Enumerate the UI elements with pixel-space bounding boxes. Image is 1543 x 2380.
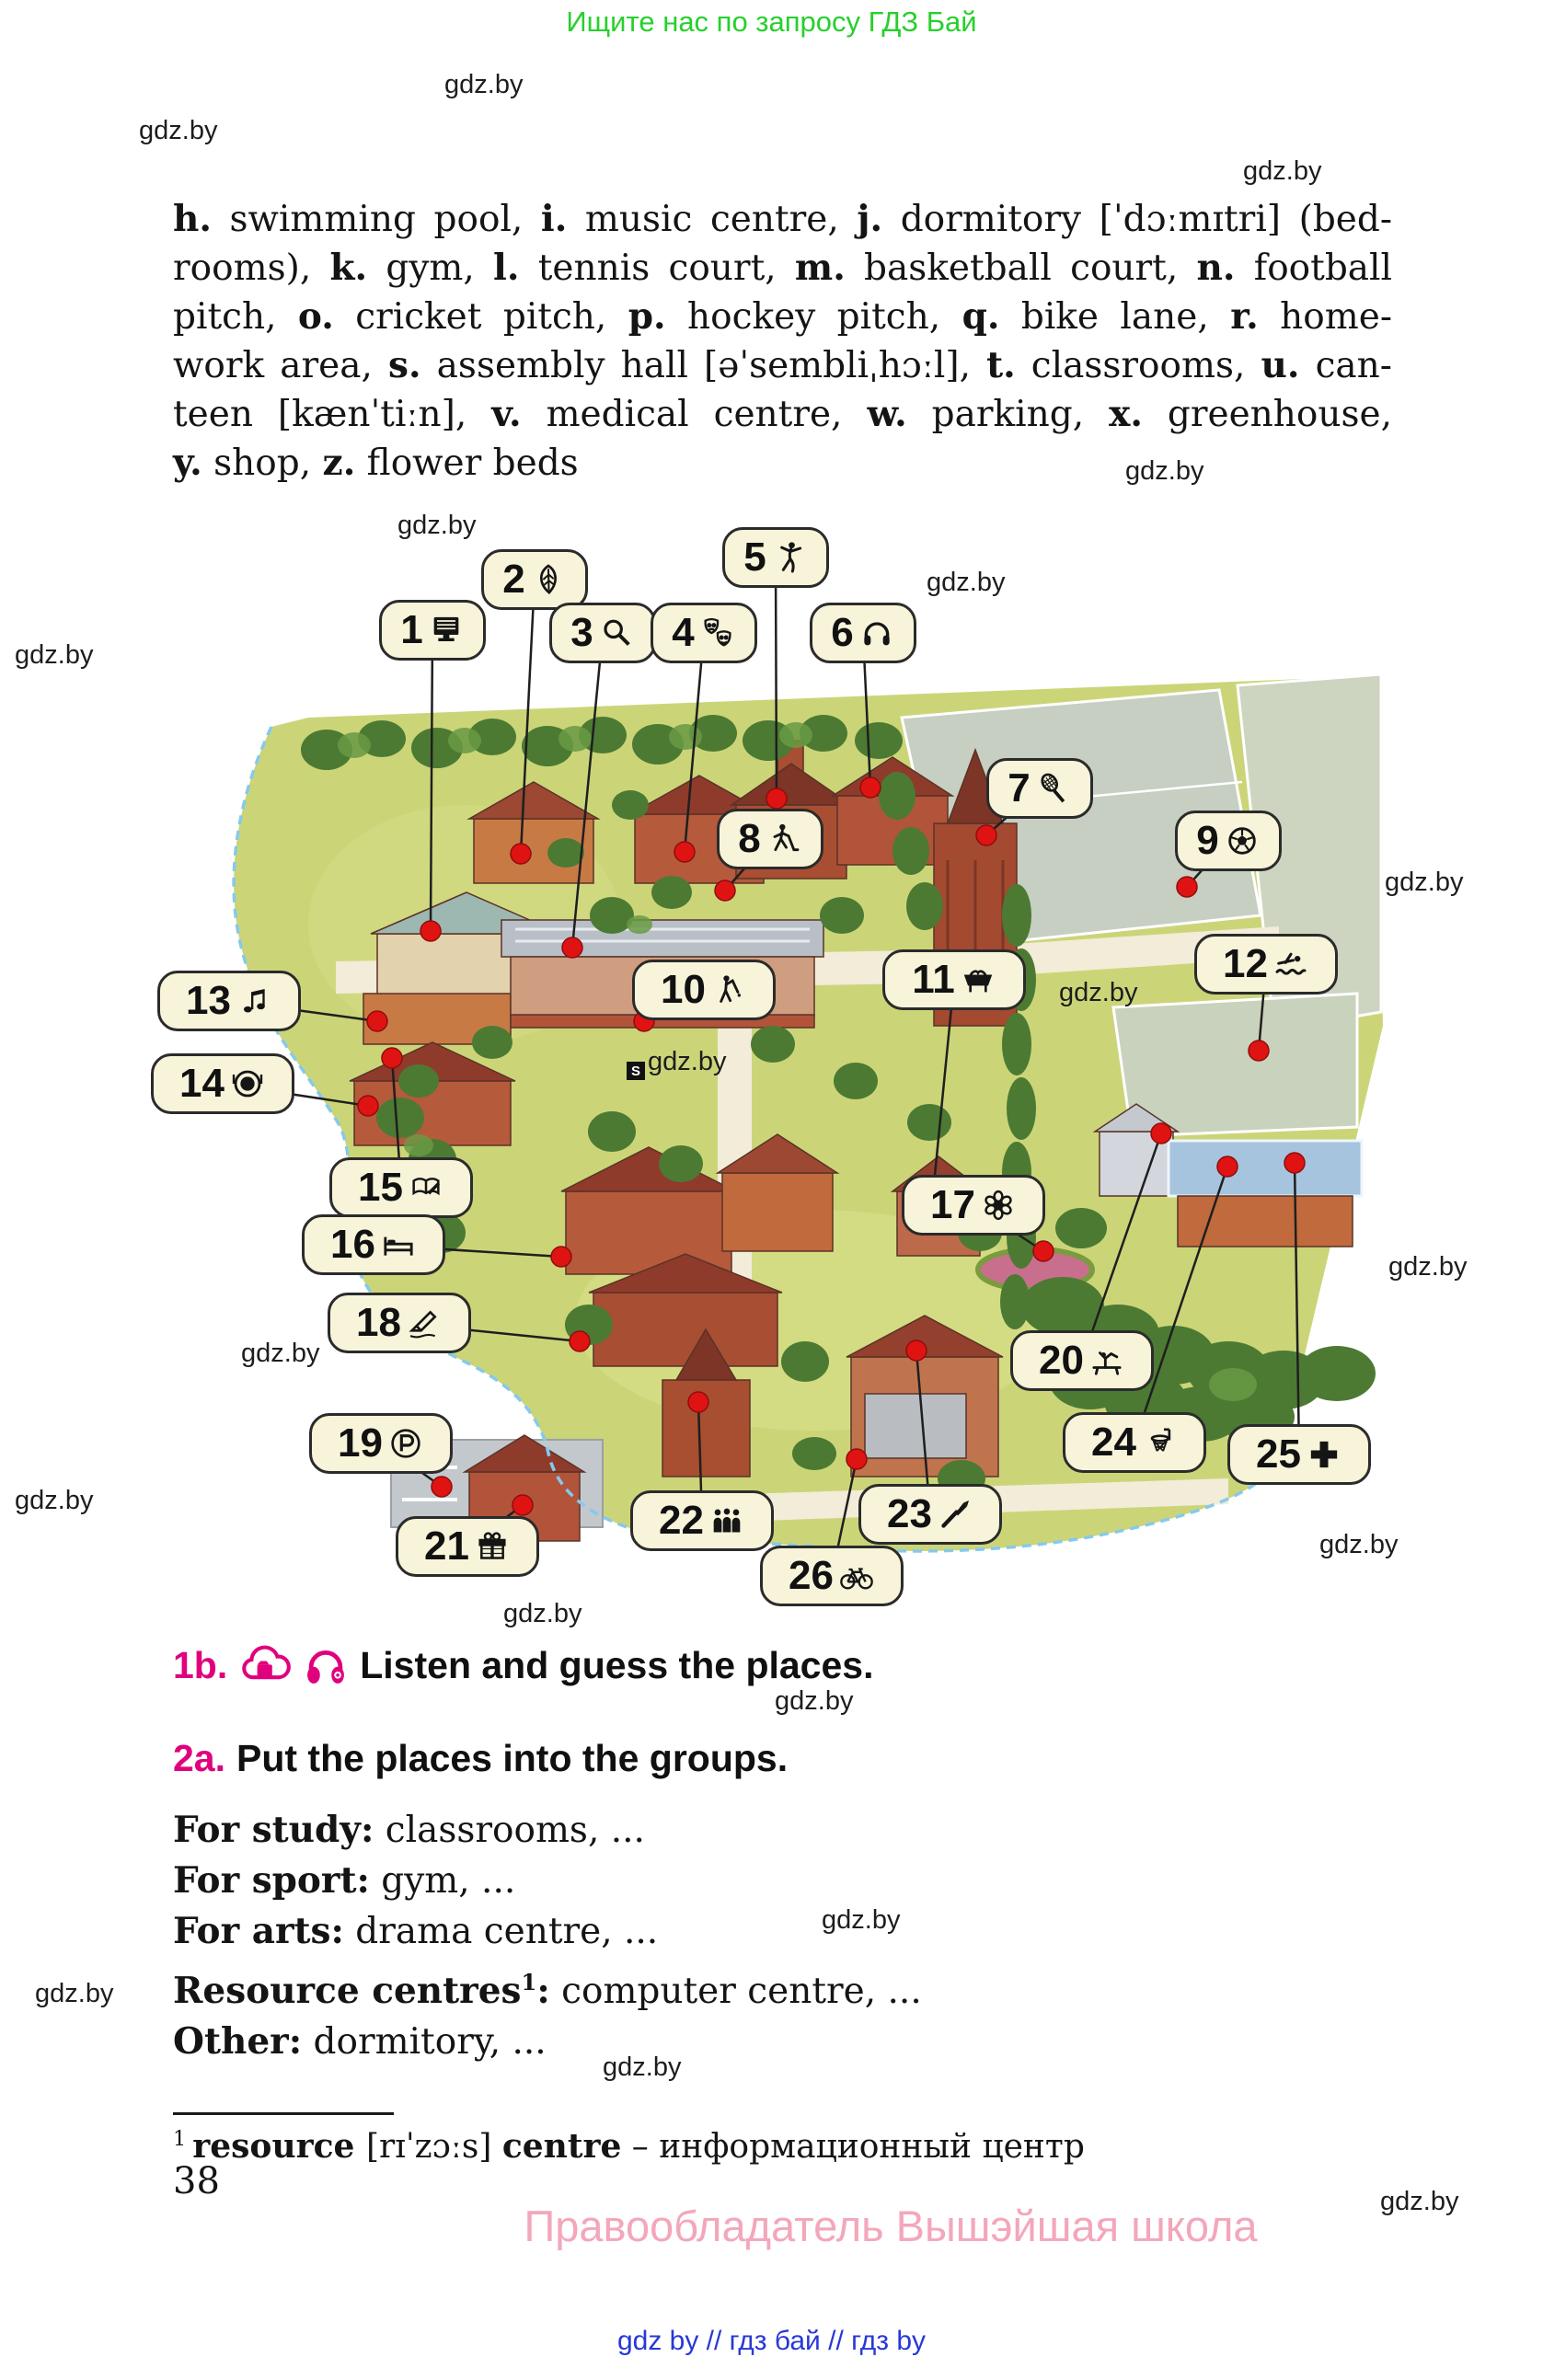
map-label-number: 12 xyxy=(1223,944,1268,984)
text-segment: assembly hall [əˈsembliˌhɔːl], xyxy=(421,345,987,386)
map-label-19: 19 xyxy=(309,1413,453,1474)
text-segment: parking, xyxy=(907,394,1109,435)
vocab-line: h. swimming pool, i. music centre, j. do… xyxy=(173,195,1392,244)
gdz-watermark: gdz.by xyxy=(241,1339,319,1369)
map-label-11: 11 xyxy=(882,949,1026,1010)
map-label-number: 11 xyxy=(912,960,955,1000)
text-segment: m. xyxy=(795,247,846,289)
text-segment: shop, xyxy=(202,443,323,484)
leaf-icon xyxy=(530,561,567,598)
gdz-watermark: gdz.by xyxy=(822,1905,900,1936)
headphones-icon xyxy=(858,615,895,651)
gdz-watermark: gdz.by xyxy=(1388,1252,1467,1282)
vocab-line: pitch, o. cricket pitch, p. hockey pitch… xyxy=(173,293,1392,341)
map-label-3: 3 xyxy=(549,603,656,663)
school-desk-icon xyxy=(960,961,996,998)
map-label-number: 15 xyxy=(358,1167,403,1208)
dancer-icon xyxy=(771,539,808,576)
gdz-watermark: gdz.by xyxy=(397,511,476,541)
map-label-20: 20 xyxy=(1010,1330,1154,1391)
gift-icon xyxy=(474,1528,511,1565)
map-label-23: 23 xyxy=(858,1484,1002,1545)
text-segment: greenhouse, xyxy=(1143,394,1392,435)
map-label-4: 4 xyxy=(651,603,757,663)
text-segment: rooms), xyxy=(173,247,330,289)
gdz-watermark: gdz.by xyxy=(775,1686,853,1717)
footnote: 1 resource [rɪˈzɔːs] centre – информацио… xyxy=(173,2127,1085,2166)
book-pen-icon xyxy=(408,1169,444,1206)
map-label-number: 6 xyxy=(831,613,853,653)
text-segment: teen [kænˈtiːn], xyxy=(173,394,491,435)
map-label-12: 12 xyxy=(1194,934,1338,995)
text-segment: home- xyxy=(1259,296,1392,338)
text-segment: i. xyxy=(541,198,567,240)
top-banner: Ищите нас по запросу ГДЗ Бай xyxy=(0,6,1543,39)
vocab-line: y. shop, z. flower beds xyxy=(173,439,1392,488)
group-line: For study: classrooms, ... xyxy=(173,1805,922,1856)
map-label-number: 4 xyxy=(672,613,694,653)
gdz-watermark: gdz.by xyxy=(1059,978,1137,1008)
text-segment: y. xyxy=(173,442,202,484)
map-label-21: 21 xyxy=(396,1516,539,1577)
page-number: 38 xyxy=(173,2160,220,2202)
map-label-6: 6 xyxy=(810,603,916,663)
text-segment: – информационный центр xyxy=(621,2128,1085,2166)
map-label-number: 7 xyxy=(1008,768,1030,809)
hockey-player-icon xyxy=(766,821,802,857)
map-label-24: 24 xyxy=(1063,1412,1206,1473)
text-segment: z. xyxy=(323,442,356,484)
gdz-watermark: gdz.by xyxy=(35,1979,113,2009)
text-segment: can- xyxy=(1299,345,1392,386)
medical-cross-icon xyxy=(1306,1436,1342,1473)
text-segment: flower beds xyxy=(355,443,578,484)
text-segment: football xyxy=(1235,247,1392,289)
audio-cloud-icon xyxy=(238,1643,292,1687)
text-segment: swimming pool, xyxy=(212,199,541,240)
tennis-racket-icon xyxy=(1035,770,1072,807)
vocab-list: h. swimming pool, i. music centre, j. do… xyxy=(173,195,1392,488)
map-label-9: 9 xyxy=(1175,811,1282,871)
text-segment: music centre, xyxy=(567,199,857,240)
task-text: Put the places into the groups. xyxy=(236,1737,788,1780)
map-label-number: 16 xyxy=(330,1224,375,1265)
text-segment: w. xyxy=(867,393,906,435)
gdz-watermark: gdz.by xyxy=(139,116,217,146)
map-label-number: 14 xyxy=(179,1064,225,1104)
gdz-watermark: gdz.by xyxy=(1319,1530,1398,1560)
theatre-masks-icon xyxy=(699,615,736,651)
text-segment: pitch, xyxy=(173,296,298,338)
map-label-number: 8 xyxy=(738,819,760,859)
map-label-number: 1 xyxy=(400,610,422,650)
school-sign: S xyxy=(627,1062,645,1080)
gdz-watermark: gdz.by xyxy=(603,2052,681,2083)
map-label-number: 3 xyxy=(570,613,593,653)
music-note-icon xyxy=(236,983,272,1019)
basketball-hoop-icon xyxy=(1141,1424,1178,1461)
text-segment: work area, xyxy=(173,345,388,386)
text-segment: centre xyxy=(502,2127,622,2166)
golf-player-icon xyxy=(710,972,747,1008)
bed-icon xyxy=(380,1226,417,1263)
text-segment: classrooms, xyxy=(1016,345,1261,386)
text-segment: h. xyxy=(173,198,212,240)
headphones-icon xyxy=(303,1643,349,1687)
text-segment: basketball court, xyxy=(846,247,1197,289)
flower-icon xyxy=(980,1187,1017,1224)
text-segment: q. xyxy=(962,295,1000,338)
gdz-watermark: gdz.by xyxy=(15,1486,93,1516)
people-icon xyxy=(708,1502,745,1539)
text-segment: s. xyxy=(388,344,421,386)
text-segment: v. xyxy=(491,393,521,435)
gdz-watermark: gdz.by xyxy=(1380,2187,1458,2217)
group-list: For study: classrooms, ...For sport: gym… xyxy=(173,1805,922,2067)
vocab-line: work area, s. assembly hall [əˈsembliˌhɔ… xyxy=(173,341,1392,390)
map-label-number: 26 xyxy=(789,1556,834,1596)
map-label-16: 16 xyxy=(302,1214,445,1275)
map-label-number: 10 xyxy=(661,970,706,1010)
gdz-watermark: gdz.by xyxy=(648,1047,726,1077)
text-segment: u. xyxy=(1261,344,1300,386)
task-number: 1b. xyxy=(173,1644,227,1687)
text-segment: o. xyxy=(298,295,334,338)
swimmer-icon xyxy=(1272,946,1309,983)
text-segment: n. xyxy=(1197,247,1236,289)
map-label-13: 13 xyxy=(157,971,301,1031)
map-label-number: 19 xyxy=(338,1423,383,1464)
gdz-watermark: gdz.by xyxy=(444,70,523,100)
task-number: 2a. xyxy=(173,1737,225,1780)
group-line: Other: dormitory, ... xyxy=(173,2017,922,2067)
group-line: Resource centres1: computer centre, ... xyxy=(173,1957,922,2017)
map-label-number: 22 xyxy=(659,1500,704,1541)
text-segment: hockey pitch, xyxy=(666,296,962,338)
text-segment: cricket pitch, xyxy=(334,296,628,338)
text-segment: l. xyxy=(493,247,519,289)
group-line: For sport: gym, ... xyxy=(173,1856,922,1906)
text-segment: tennis court, xyxy=(519,247,794,289)
map-label-1: 1 xyxy=(379,600,486,661)
copyright-footer: Правообладатель Вышэйшая школа xyxy=(524,2201,1257,2251)
map-label-26: 26 xyxy=(760,1546,904,1606)
map-label-18: 18 xyxy=(328,1293,471,1353)
text-segment: medical centre, xyxy=(522,394,868,435)
map-label-number: 18 xyxy=(356,1303,401,1343)
task-2a: 2a. Put the places into the groups. xyxy=(173,1737,788,1780)
football-icon xyxy=(1224,822,1261,859)
textbook-page: Ищите нас по запросу ГДЗ Бай h. swimming… xyxy=(0,0,1543,2380)
map-label-number: 24 xyxy=(1091,1422,1136,1463)
vocab-line: rooms), k. gym, l. tennis court, m. bask… xyxy=(173,244,1392,293)
parking-icon xyxy=(387,1425,424,1462)
bottom-banner: gdz by // гдз бай // гдз by xyxy=(0,2326,1543,2357)
gdz-watermark: gdz.by xyxy=(503,1599,582,1629)
dinner-plate-icon xyxy=(229,1065,266,1102)
map-label-number: 13 xyxy=(186,981,231,1021)
map-label-number: 23 xyxy=(887,1494,932,1535)
gdz-watermark: gdz.by xyxy=(1243,156,1321,187)
text-segment: k. xyxy=(330,247,368,289)
gdz-watermark: gdz.by xyxy=(927,568,1005,598)
map-label-number: 25 xyxy=(1256,1434,1301,1475)
map-label-14: 14 xyxy=(151,1053,294,1114)
map-label-number: 20 xyxy=(1039,1340,1084,1381)
text-segment: dormitory [ˈdɔːmɪtri] (bed- xyxy=(882,199,1392,240)
text-segment: t. xyxy=(986,344,1016,386)
text-segment: r. xyxy=(1230,295,1259,338)
group-line: For arts: drama centre, ... xyxy=(173,1906,922,1957)
bicycle-icon xyxy=(838,1558,875,1594)
map-label-number: 21 xyxy=(424,1526,469,1567)
map-label-7: 7 xyxy=(986,758,1093,819)
map-label-5: 5 xyxy=(722,527,829,588)
text-segment: x. xyxy=(1109,393,1143,435)
gdz-watermark: gdz.by xyxy=(15,640,93,671)
map-label-number: 17 xyxy=(930,1185,975,1225)
map-label-15: 15 xyxy=(329,1157,473,1218)
map-label-17: 17 xyxy=(902,1175,1045,1236)
gymnast-icon xyxy=(1088,1342,1125,1379)
map-label-8: 8 xyxy=(717,809,823,869)
map-label-22: 22 xyxy=(630,1490,774,1551)
text-segment: bike lane, xyxy=(999,296,1230,338)
map-label-number: 2 xyxy=(502,559,524,600)
writing-hand-icon xyxy=(406,1305,443,1341)
gdz-watermark: gdz.by xyxy=(1385,868,1463,898)
text-segment: j. xyxy=(857,198,882,240)
text-segment: [rɪˈzɔːs] xyxy=(366,2128,502,2166)
map-label-number: 5 xyxy=(743,537,766,578)
computer-icon xyxy=(428,612,465,649)
gdz-watermark: gdz.by xyxy=(1125,456,1203,487)
text-segment: gym, xyxy=(367,247,493,289)
task-1b: 1b. Listen and guess the places. xyxy=(173,1643,873,1687)
vocab-line: teen [kænˈtiːn], v. medical centre, w. p… xyxy=(173,390,1392,439)
map-label-25: 25 xyxy=(1227,1424,1371,1485)
map-label-number: 9 xyxy=(1196,821,1218,861)
map-label-2: 2 xyxy=(481,549,588,610)
text-segment: p. xyxy=(628,295,666,338)
footnote-rule xyxy=(173,2112,394,2115)
magnifier-icon xyxy=(598,615,635,651)
task-text: Listen and guess the places. xyxy=(360,1644,873,1687)
paintbrush-icon xyxy=(937,1496,973,1533)
map-label-10: 10 xyxy=(632,960,776,1020)
